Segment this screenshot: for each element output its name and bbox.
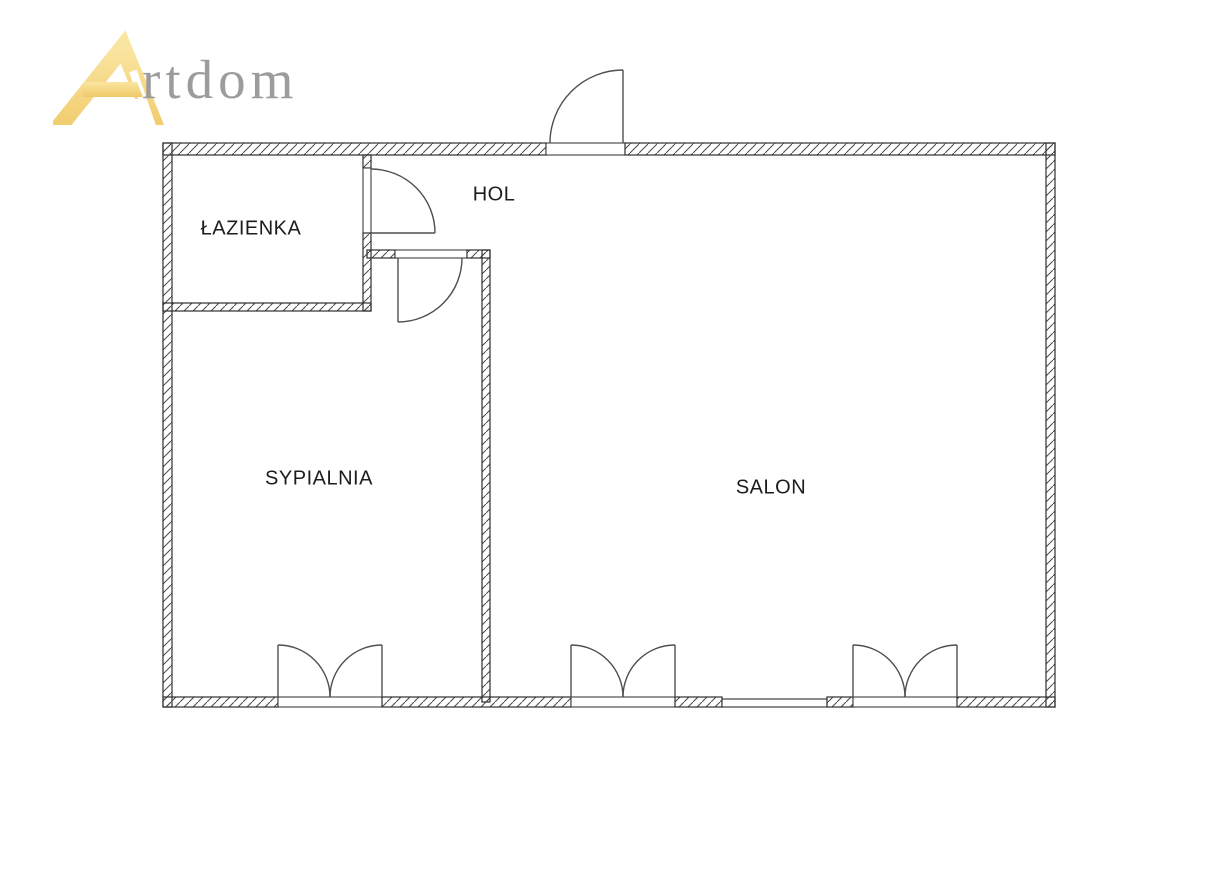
salon-balcony-door-2 bbox=[853, 645, 957, 697]
wall-bottom-2 bbox=[382, 697, 571, 707]
bathroom-door-swing-arc bbox=[371, 169, 435, 233]
salon-balcony2-left-arc bbox=[853, 645, 905, 697]
bathroom-wall-bottom bbox=[163, 303, 371, 311]
salon-balcony2-right-arc bbox=[905, 645, 957, 697]
wall-right bbox=[1046, 143, 1055, 707]
salon-balcony1-left-arc bbox=[571, 645, 623, 697]
bedroom-salon-divider-wall bbox=[482, 250, 490, 702]
bedroom-balcony-left-arc bbox=[278, 645, 330, 697]
bedroom-door bbox=[398, 258, 462, 322]
salon-balcony-opening-1 bbox=[571, 697, 675, 707]
wall-top-left bbox=[163, 143, 546, 155]
entrance-door bbox=[550, 70, 623, 143]
wall-bottom-3 bbox=[675, 697, 722, 707]
room-label-living-room: SALON bbox=[736, 477, 806, 500]
entrance-door-swing-arc bbox=[550, 70, 623, 143]
floor-plan bbox=[0, 0, 1221, 886]
salon-balcony-door-1 bbox=[571, 645, 675, 697]
salon-balcony-opening-2 bbox=[853, 697, 957, 707]
room-label-bedroom: SYPIALNIA bbox=[265, 468, 373, 491]
wall-top-right bbox=[625, 143, 1055, 155]
bedroom-balcony-opening bbox=[278, 697, 382, 707]
bathroom-door-opening bbox=[363, 168, 371, 233]
bedroom-balcony-right-arc bbox=[330, 645, 382, 697]
wall-bottom-5 bbox=[957, 697, 1055, 707]
bedroom-door-opening bbox=[395, 250, 467, 258]
bathroom-wall-right-lower bbox=[363, 233, 371, 311]
wall-bottom-4 bbox=[827, 697, 853, 707]
bedroom-door-swing-arc bbox=[398, 258, 462, 322]
bedroom-wall-top-left bbox=[367, 250, 395, 258]
room-label-bathroom: ŁAZIENKA bbox=[201, 218, 302, 241]
entrance-opening bbox=[546, 143, 625, 155]
salon-balcony1-right-arc bbox=[623, 645, 675, 697]
bedroom-balcony-door bbox=[278, 645, 382, 697]
wall-left bbox=[163, 143, 172, 707]
bathroom-wall-right-upper bbox=[363, 155, 371, 168]
bathroom-door bbox=[371, 169, 435, 233]
salon-window bbox=[722, 699, 827, 707]
wall-bottom-1 bbox=[163, 697, 278, 707]
room-label-hall: HOL bbox=[473, 184, 516, 207]
